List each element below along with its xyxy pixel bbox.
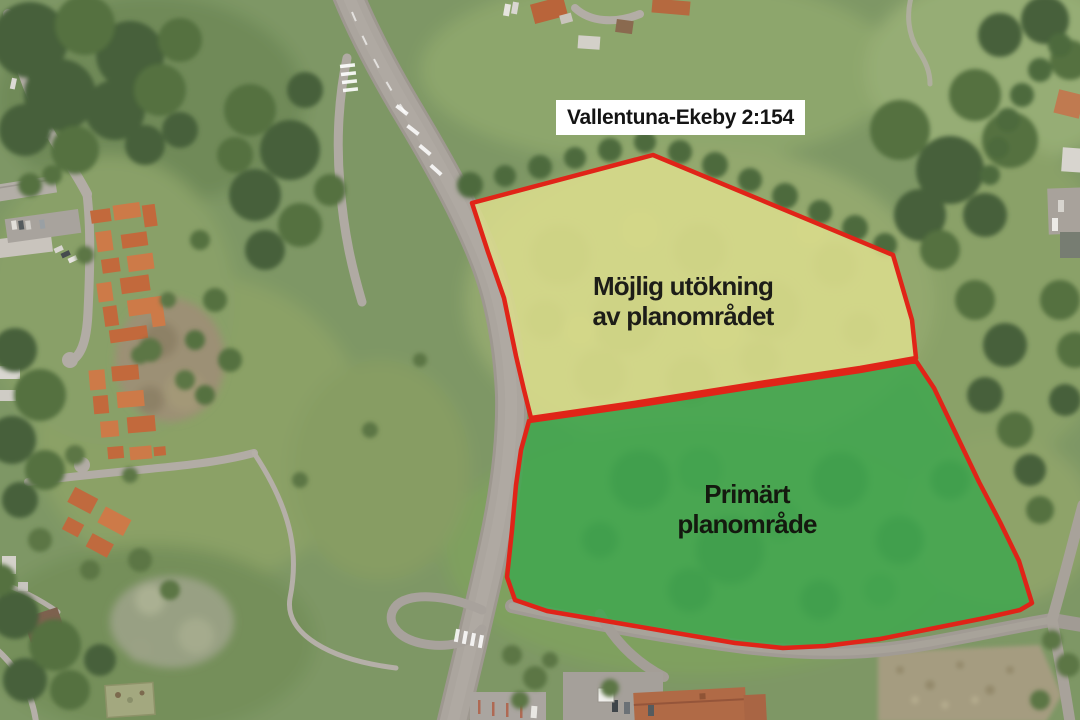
expansion-area-label-line1: Möjlig utökning xyxy=(593,271,773,301)
aerial-map: Möjlig utökning av planområdet Primärt p… xyxy=(0,0,1080,720)
primary-area-label-line1: Primärt xyxy=(704,479,791,509)
primary-area-label-line2: planområde xyxy=(677,509,817,539)
aerial-basemap: Möjlig utökning av planområdet Primärt p… xyxy=(0,0,1080,720)
expansion-area-label-line2: av planområdet xyxy=(593,301,775,331)
parcel-title-label: Vallentuna-Ekeby 2:154 xyxy=(556,100,805,135)
